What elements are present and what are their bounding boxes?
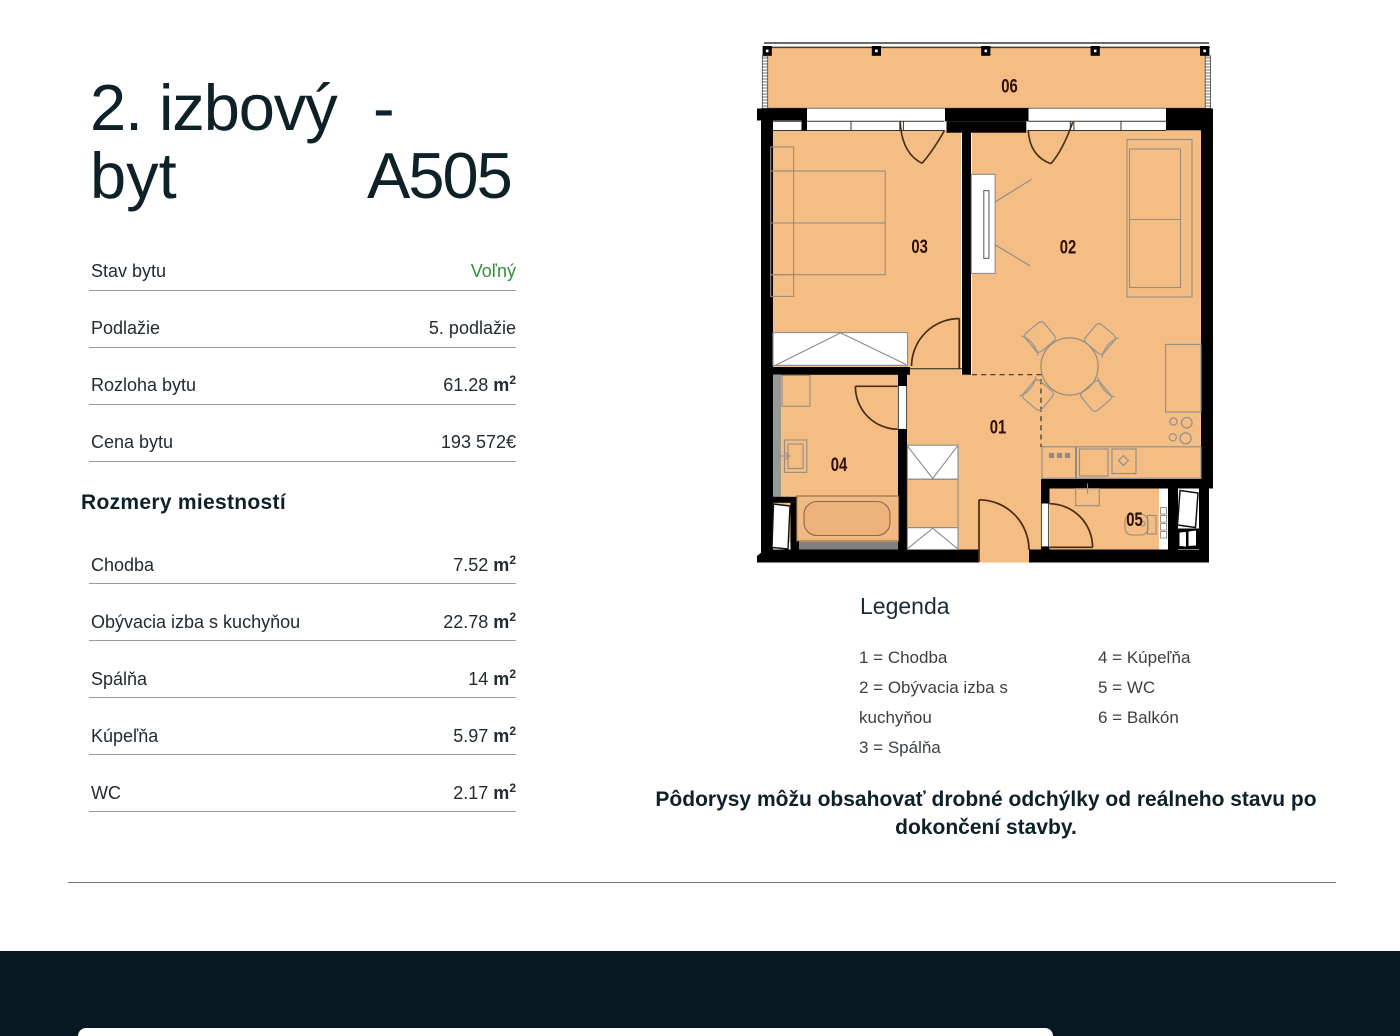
svg-text:01: 01 [990, 418, 1007, 439]
svg-text:04: 04 [831, 455, 848, 476]
svg-text:03: 03 [911, 237, 928, 258]
svg-text:02: 02 [1060, 238, 1077, 259]
svg-text:06: 06 [1001, 77, 1018, 98]
svg-text:05: 05 [1126, 510, 1143, 531]
